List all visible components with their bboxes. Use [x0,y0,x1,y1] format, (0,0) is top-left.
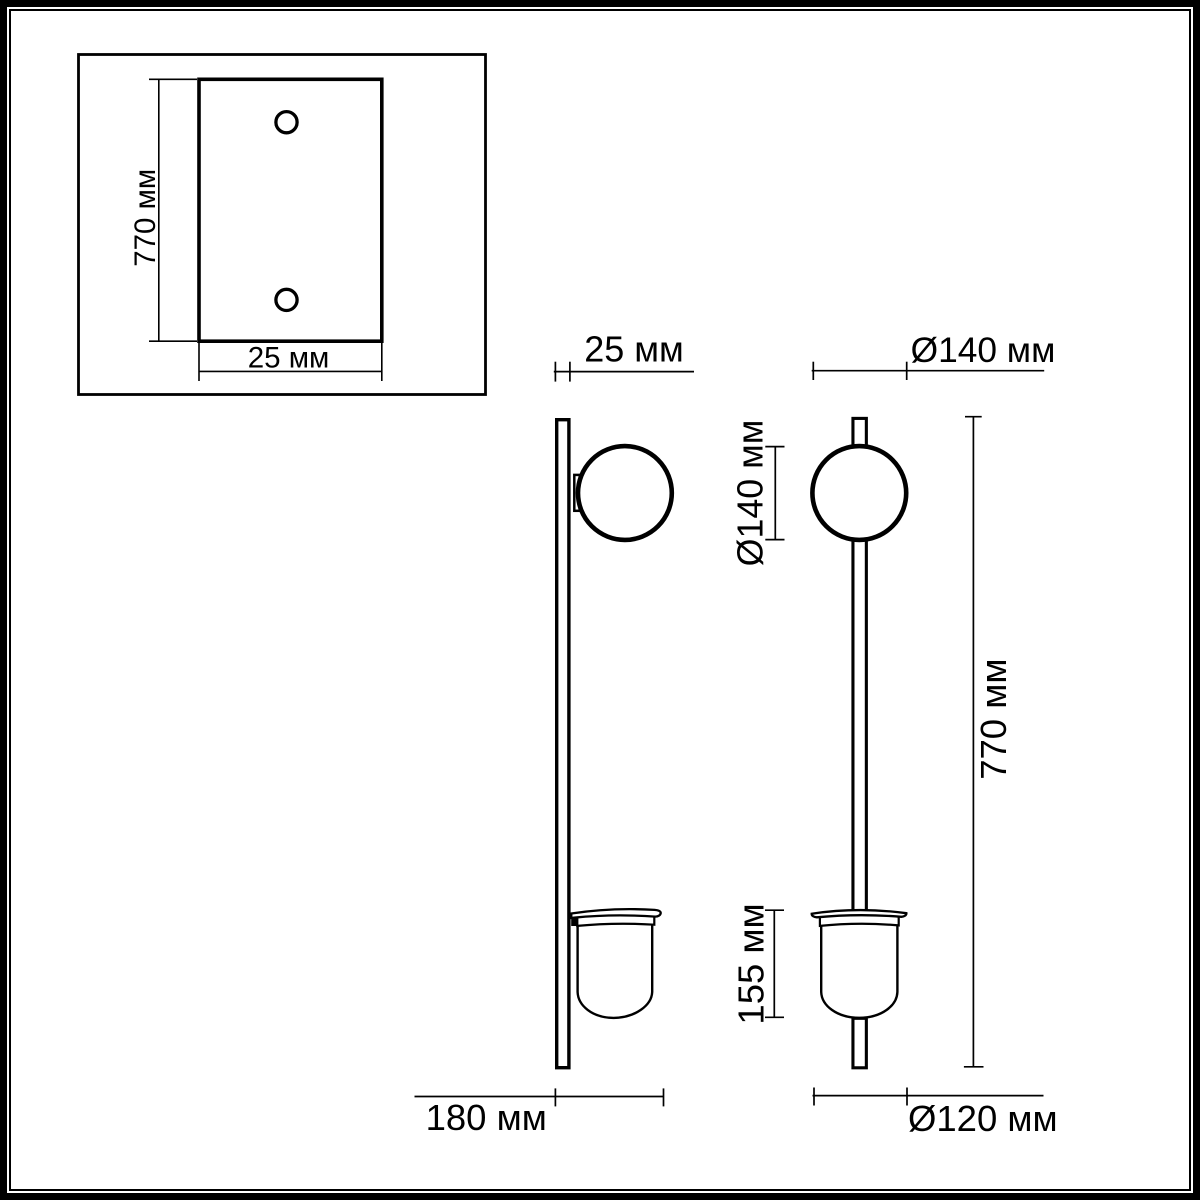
svg-text:Ø120 мм: Ø120 мм [908,1098,1058,1139]
svg-text:180 мм: 180 мм [426,1097,547,1138]
svg-text:Ø140 мм: Ø140 мм [911,331,1056,370]
svg-text:Ø140 мм: Ø140 мм [731,420,771,567]
svg-text:155 мм: 155 мм [731,903,772,1024]
svg-text:770 мм: 770 мм [129,169,162,267]
svg-text:25 мм: 25 мм [584,329,684,370]
svg-text:770 мм: 770 мм [973,659,1014,780]
svg-text:25 мм: 25 мм [248,342,330,375]
